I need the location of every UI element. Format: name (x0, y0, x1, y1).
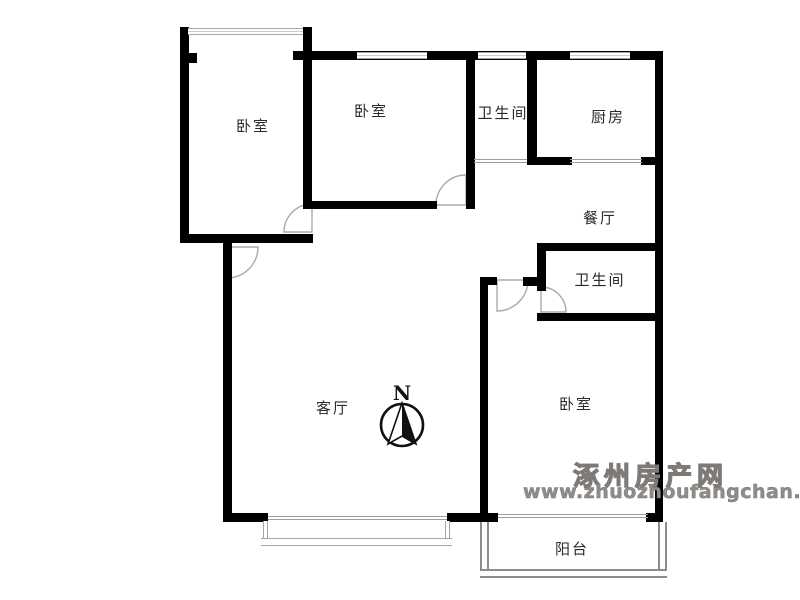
watermark-site-url: www.zhuozhoufangchan.com (523, 481, 778, 503)
floor-plan-canvas: 卧室 卧室 卫生间 厨房 餐厅 卫生间 客厅 卧室 阳台 N 涿州房产网 www… (0, 0, 800, 600)
compass-icon (0, 0, 800, 600)
